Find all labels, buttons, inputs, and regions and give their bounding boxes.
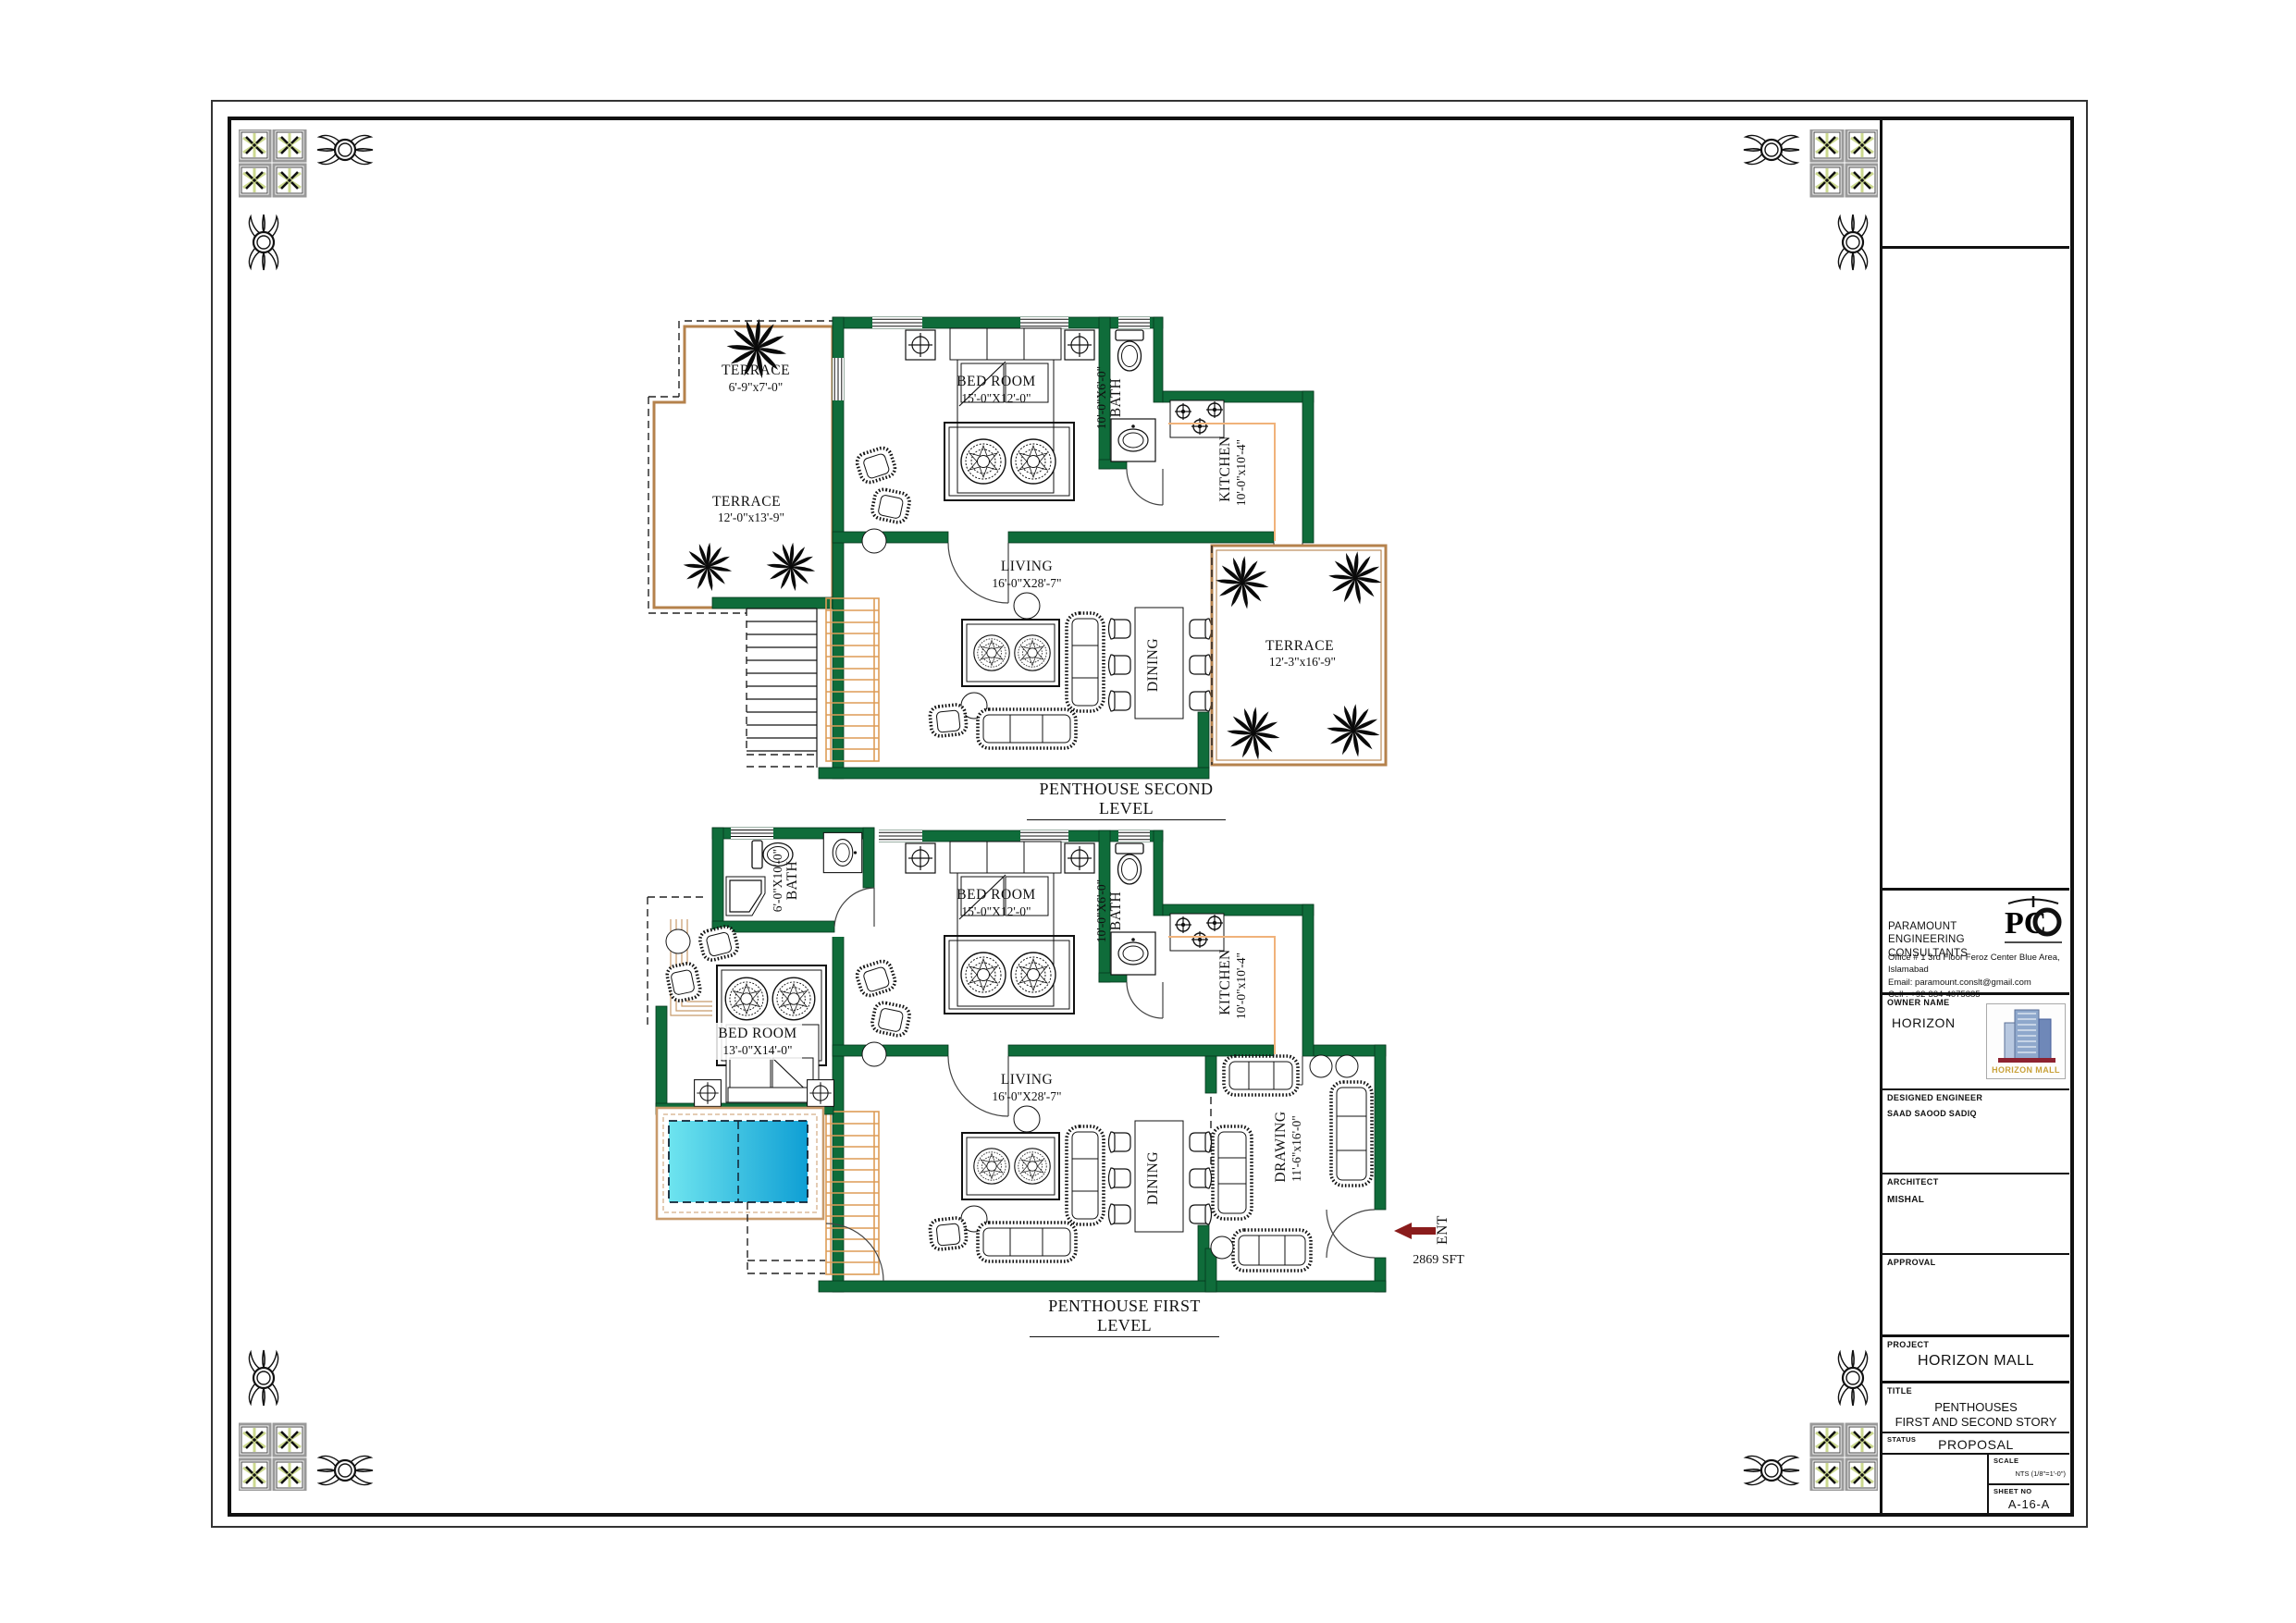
- architect-label: ARCHITECT: [1887, 1177, 1939, 1187]
- room-dims: 10'-0"X6'-0": [1094, 879, 1108, 942]
- room-dims: 15'-0"X12'-0": [961, 391, 1031, 405]
- approval-label: APPROVAL: [1887, 1258, 1936, 1267]
- room-dims: 15'-0"X12'-0": [961, 904, 1031, 918]
- room-label: TERRACE: [712, 494, 781, 510]
- pec-logo: PC: [2001, 894, 2066, 952]
- tb-sheet-no: SHEET NO A-16-A: [1989, 1485, 2069, 1515]
- round-table-icon: [666, 929, 690, 953]
- horizon-mall-logo-text: HORIZON MALL: [1992, 1065, 2060, 1075]
- room-dims: 10'-0"X6'-0": [1094, 366, 1108, 429]
- room-label: DRAWING: [1273, 1111, 1289, 1182]
- status-value: PROPOSAL: [1882, 1437, 2069, 1452]
- bedroom-13x14: [656, 925, 833, 1114]
- tb-title: TITLE PENTHOUSES FIRST AND SECOND STORY: [1882, 1381, 2069, 1432]
- company-office: Office # 1 3rd Floor Feroz Center Blue A…: [1888, 952, 2064, 977]
- room-label: TERRACE: [722, 363, 790, 378]
- tb-company: PARAMOUNT ENGINEERING CONSULTANTS PC Off…: [1882, 888, 2069, 992]
- tb-scale: SCALE NTS (1/8"=1'-0"): [1989, 1455, 2069, 1485]
- plan-second-level: TERRACE 6'-9"x7'-0" TERRACE 12'-0"x13'-9…: [643, 310, 1429, 814]
- window-icon: [731, 828, 773, 839]
- room-label: BED ROOM: [957, 887, 1035, 903]
- project-label: PROJECT: [1887, 1340, 1929, 1349]
- room-label: BATH: [784, 861, 800, 900]
- room-label: BED ROOM: [957, 374, 1035, 389]
- tb-owner: OWNER NAME HORIZON HORIZON MALL: [1882, 992, 2069, 1088]
- stairs-exterior: [747, 609, 817, 768]
- owner-name: HORIZON: [1892, 1015, 1956, 1030]
- horizon-mall-logo: HORIZON MALL: [1986, 1003, 2066, 1079]
- sheet-title-line2: FIRST AND SECOND STORY: [1882, 1415, 2069, 1429]
- room-label: DINING: [1145, 1151, 1161, 1205]
- room-label: TERRACE: [1265, 638, 1334, 654]
- tb-architect: ARCHITECT MISHAL: [1882, 1173, 2069, 1253]
- corner-ornament: [1716, 129, 1878, 291]
- title-label: TITLE: [1887, 1386, 1912, 1396]
- architect-name: MISHAL: [1887, 1195, 1924, 1205]
- room-label: KITCHEN: [1217, 436, 1233, 502]
- room-label: KITCHEN: [1217, 949, 1233, 1015]
- company-name-line1: PARAMOUNT ENGINEERING: [1888, 921, 1965, 945]
- corner-ornament: [1716, 1329, 1878, 1491]
- room-label: BED ROOM: [718, 1026, 796, 1041]
- entrance-label: ENT: [1435, 1215, 1450, 1245]
- room-dims: 12'-0"x13'-9": [718, 510, 784, 524]
- room-dims: 13'-0"X14'-0": [722, 1043, 792, 1057]
- tb-approval: APPROVAL: [1882, 1253, 2069, 1334]
- room-label: DINING: [1145, 638, 1161, 692]
- plan-caption-second: PENTHOUSE SECOND LEVEL: [1027, 780, 1226, 820]
- room-dims: 10'-0"x10'-4": [1234, 439, 1248, 506]
- corner-ornament: [239, 129, 401, 291]
- drawing-sheet: TERRACE 6'-9"x7'-0" TERRACE 12'-0"x13'-9…: [0, 0, 2296, 1623]
- room-label: BATH: [1108, 378, 1124, 417]
- owner-label: OWNER NAME: [1887, 998, 1950, 1007]
- sheet-title-line1: PENTHOUSES: [1882, 1400, 2069, 1414]
- room-dims: 6'-0"X10'-0": [771, 849, 784, 912]
- sheet-no-label: SHEET NO: [1994, 1487, 2032, 1495]
- tb-engineer: DESIGNED ENGINEER SAAD SAOOD SADIQ: [1882, 1088, 2069, 1173]
- room-label: LIVING: [1001, 1072, 1053, 1088]
- engineer-name: SAAD SAOOD SADIQ: [1887, 1109, 1977, 1118]
- tb-bottom-empty: [1882, 1455, 1989, 1515]
- double-door-arc: [1327, 1210, 1375, 1258]
- room-dims: 16'-0"X28'-7": [992, 1089, 1061, 1103]
- project-name: HORIZON MALL: [1882, 1353, 2069, 1370]
- swimming-pool: [657, 1108, 825, 1273]
- area-label: 2869 SFT: [1413, 1253, 1464, 1267]
- title-block: PARAMOUNT ENGINEERING CONSULTANTS PC Off…: [1880, 117, 2069, 1513]
- room-dims: 11'-6"x16'-0": [1290, 1115, 1303, 1182]
- scale-value: NTS (1/8"=1'-0"): [2016, 1469, 2066, 1478]
- room-dims: 10'-0"x10'-4": [1234, 953, 1248, 1019]
- corner-ornament: [239, 1329, 401, 1491]
- scale-label: SCALE: [1994, 1457, 2018, 1465]
- room-dims: 12'-3"x16'-9": [1269, 655, 1336, 669]
- engineer-label: DESIGNED ENGINEER: [1887, 1093, 1982, 1102]
- tb-bottom: SCALE NTS (1/8"=1'-0") SHEET NO A-16-A: [1882, 1453, 2069, 1513]
- company-email: Email: paramount.conslt@gmail.com: [1888, 977, 2064, 989]
- plan-caption-first: PENTHOUSE FIRST LEVEL: [1030, 1297, 1219, 1337]
- plan-first-level: 6'-0"X10'-0" BATH BED ROOM 13'-0"X14'-0"…: [643, 823, 1485, 1327]
- room-label: BATH: [1108, 891, 1124, 930]
- tb-status: STATUS PROPOSAL: [1882, 1432, 2069, 1453]
- room-dims: 6'-9"x7'-0": [729, 380, 784, 394]
- entry-arrow-icon: [1394, 1223, 1436, 1239]
- room-dims: 16'-0"X28'-7": [992, 576, 1061, 590]
- room-label: LIVING: [1001, 559, 1053, 574]
- tb-project: PROJECT HORIZON MALL: [1882, 1334, 2069, 1381]
- sheet-no-value: A-16-A: [1989, 1497, 2069, 1511]
